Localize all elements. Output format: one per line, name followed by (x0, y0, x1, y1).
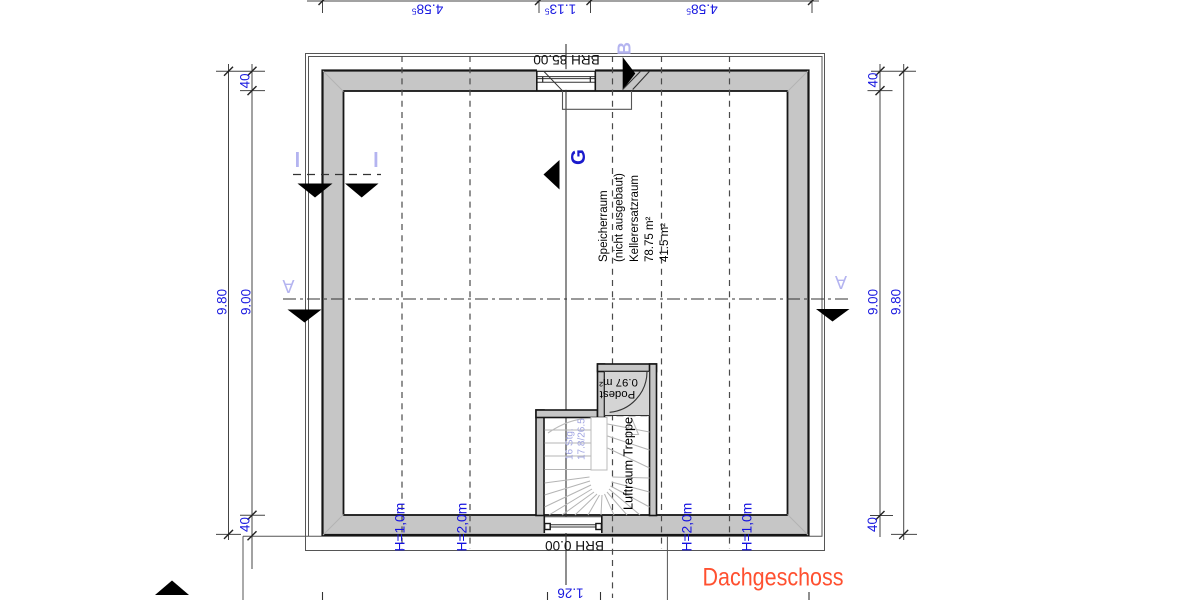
svg-text:H=2,0m: H=2,0m (680, 503, 695, 552)
svg-text:9.80: 9.80 (215, 289, 230, 315)
svg-text:17.8/26.5: 17.8/26.5 (577, 418, 588, 460)
svg-text:40: 40 (238, 517, 253, 532)
svg-text:G: G (567, 149, 590, 165)
svg-text:1.26: 1.26 (557, 586, 583, 600)
svg-text:Podest: Podest (599, 388, 635, 400)
svg-text:A: A (835, 272, 847, 292)
svg-text:H=2,0m: H=2,0m (455, 503, 470, 552)
svg-text:40: 40 (866, 73, 881, 88)
svg-text:Dachgeschoss: Dachgeschoss (703, 564, 844, 592)
svg-text:A: A (282, 276, 294, 296)
svg-text:BRH 85.00: BRH 85.00 (533, 52, 600, 67)
svg-text:Speicherraum: Speicherraum (598, 190, 610, 262)
svg-text:Kellerersatzraum: Kellerersatzraum (629, 175, 641, 262)
svg-text:41.5 m²: 41.5 m² (659, 223, 671, 262)
svg-text:16 Stg.: 16 Stg. (565, 428, 576, 460)
svg-text:H=1,0m: H=1,0m (393, 503, 408, 552)
svg-text:0.97 m²: 0.97 m² (599, 376, 638, 388)
svg-text:Luftraum Treppe: Luftraum Treppe (622, 417, 636, 510)
svg-text:(nicht ausgebaut): (nicht ausgebaut) (614, 173, 626, 262)
svg-text:40: 40 (238, 73, 253, 88)
svg-text:40: 40 (865, 517, 880, 532)
svg-text:H=1,0m: H=1,0m (740, 503, 755, 552)
svg-text:9.80: 9.80 (889, 289, 904, 315)
svg-text:BRH 0.00: BRH 0.00 (545, 538, 604, 553)
svg-text:B: B (615, 42, 635, 55)
svg-text:9.00: 9.00 (865, 289, 880, 315)
svg-text:9.00: 9.00 (239, 289, 254, 315)
svg-text:78.75 m²: 78.75 m² (644, 216, 656, 262)
